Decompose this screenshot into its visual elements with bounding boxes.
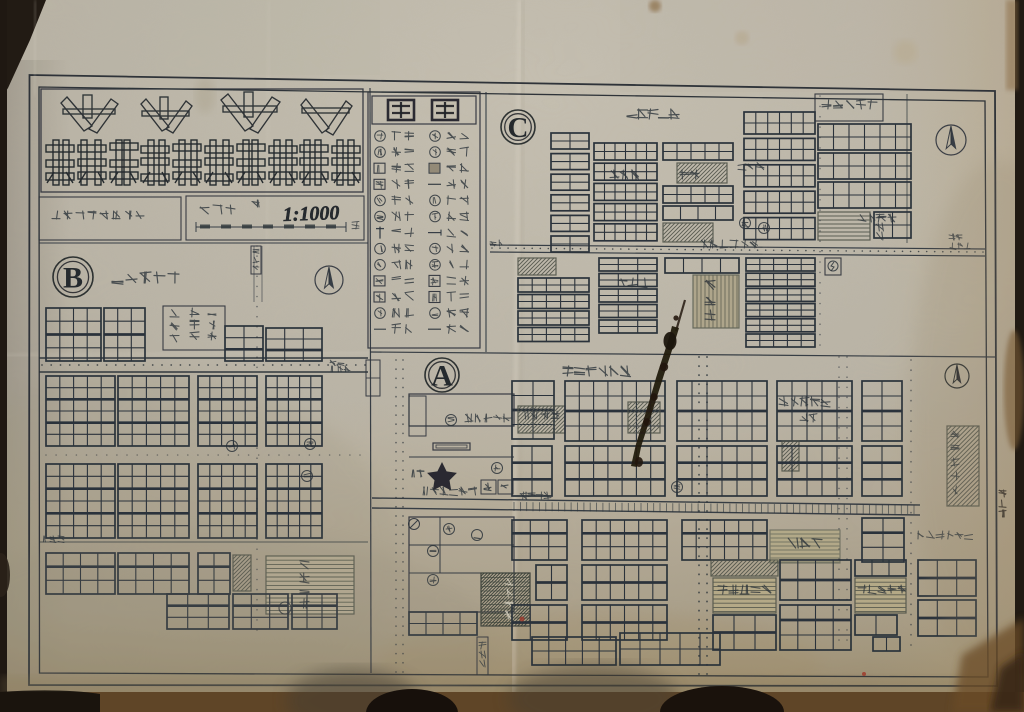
svg-text:1:1000: 1:1000 bbox=[282, 202, 339, 226]
svg-text:B: B bbox=[63, 262, 83, 295]
svg-text:A: A bbox=[431, 360, 453, 393]
svg-text:C: C bbox=[508, 112, 529, 144]
